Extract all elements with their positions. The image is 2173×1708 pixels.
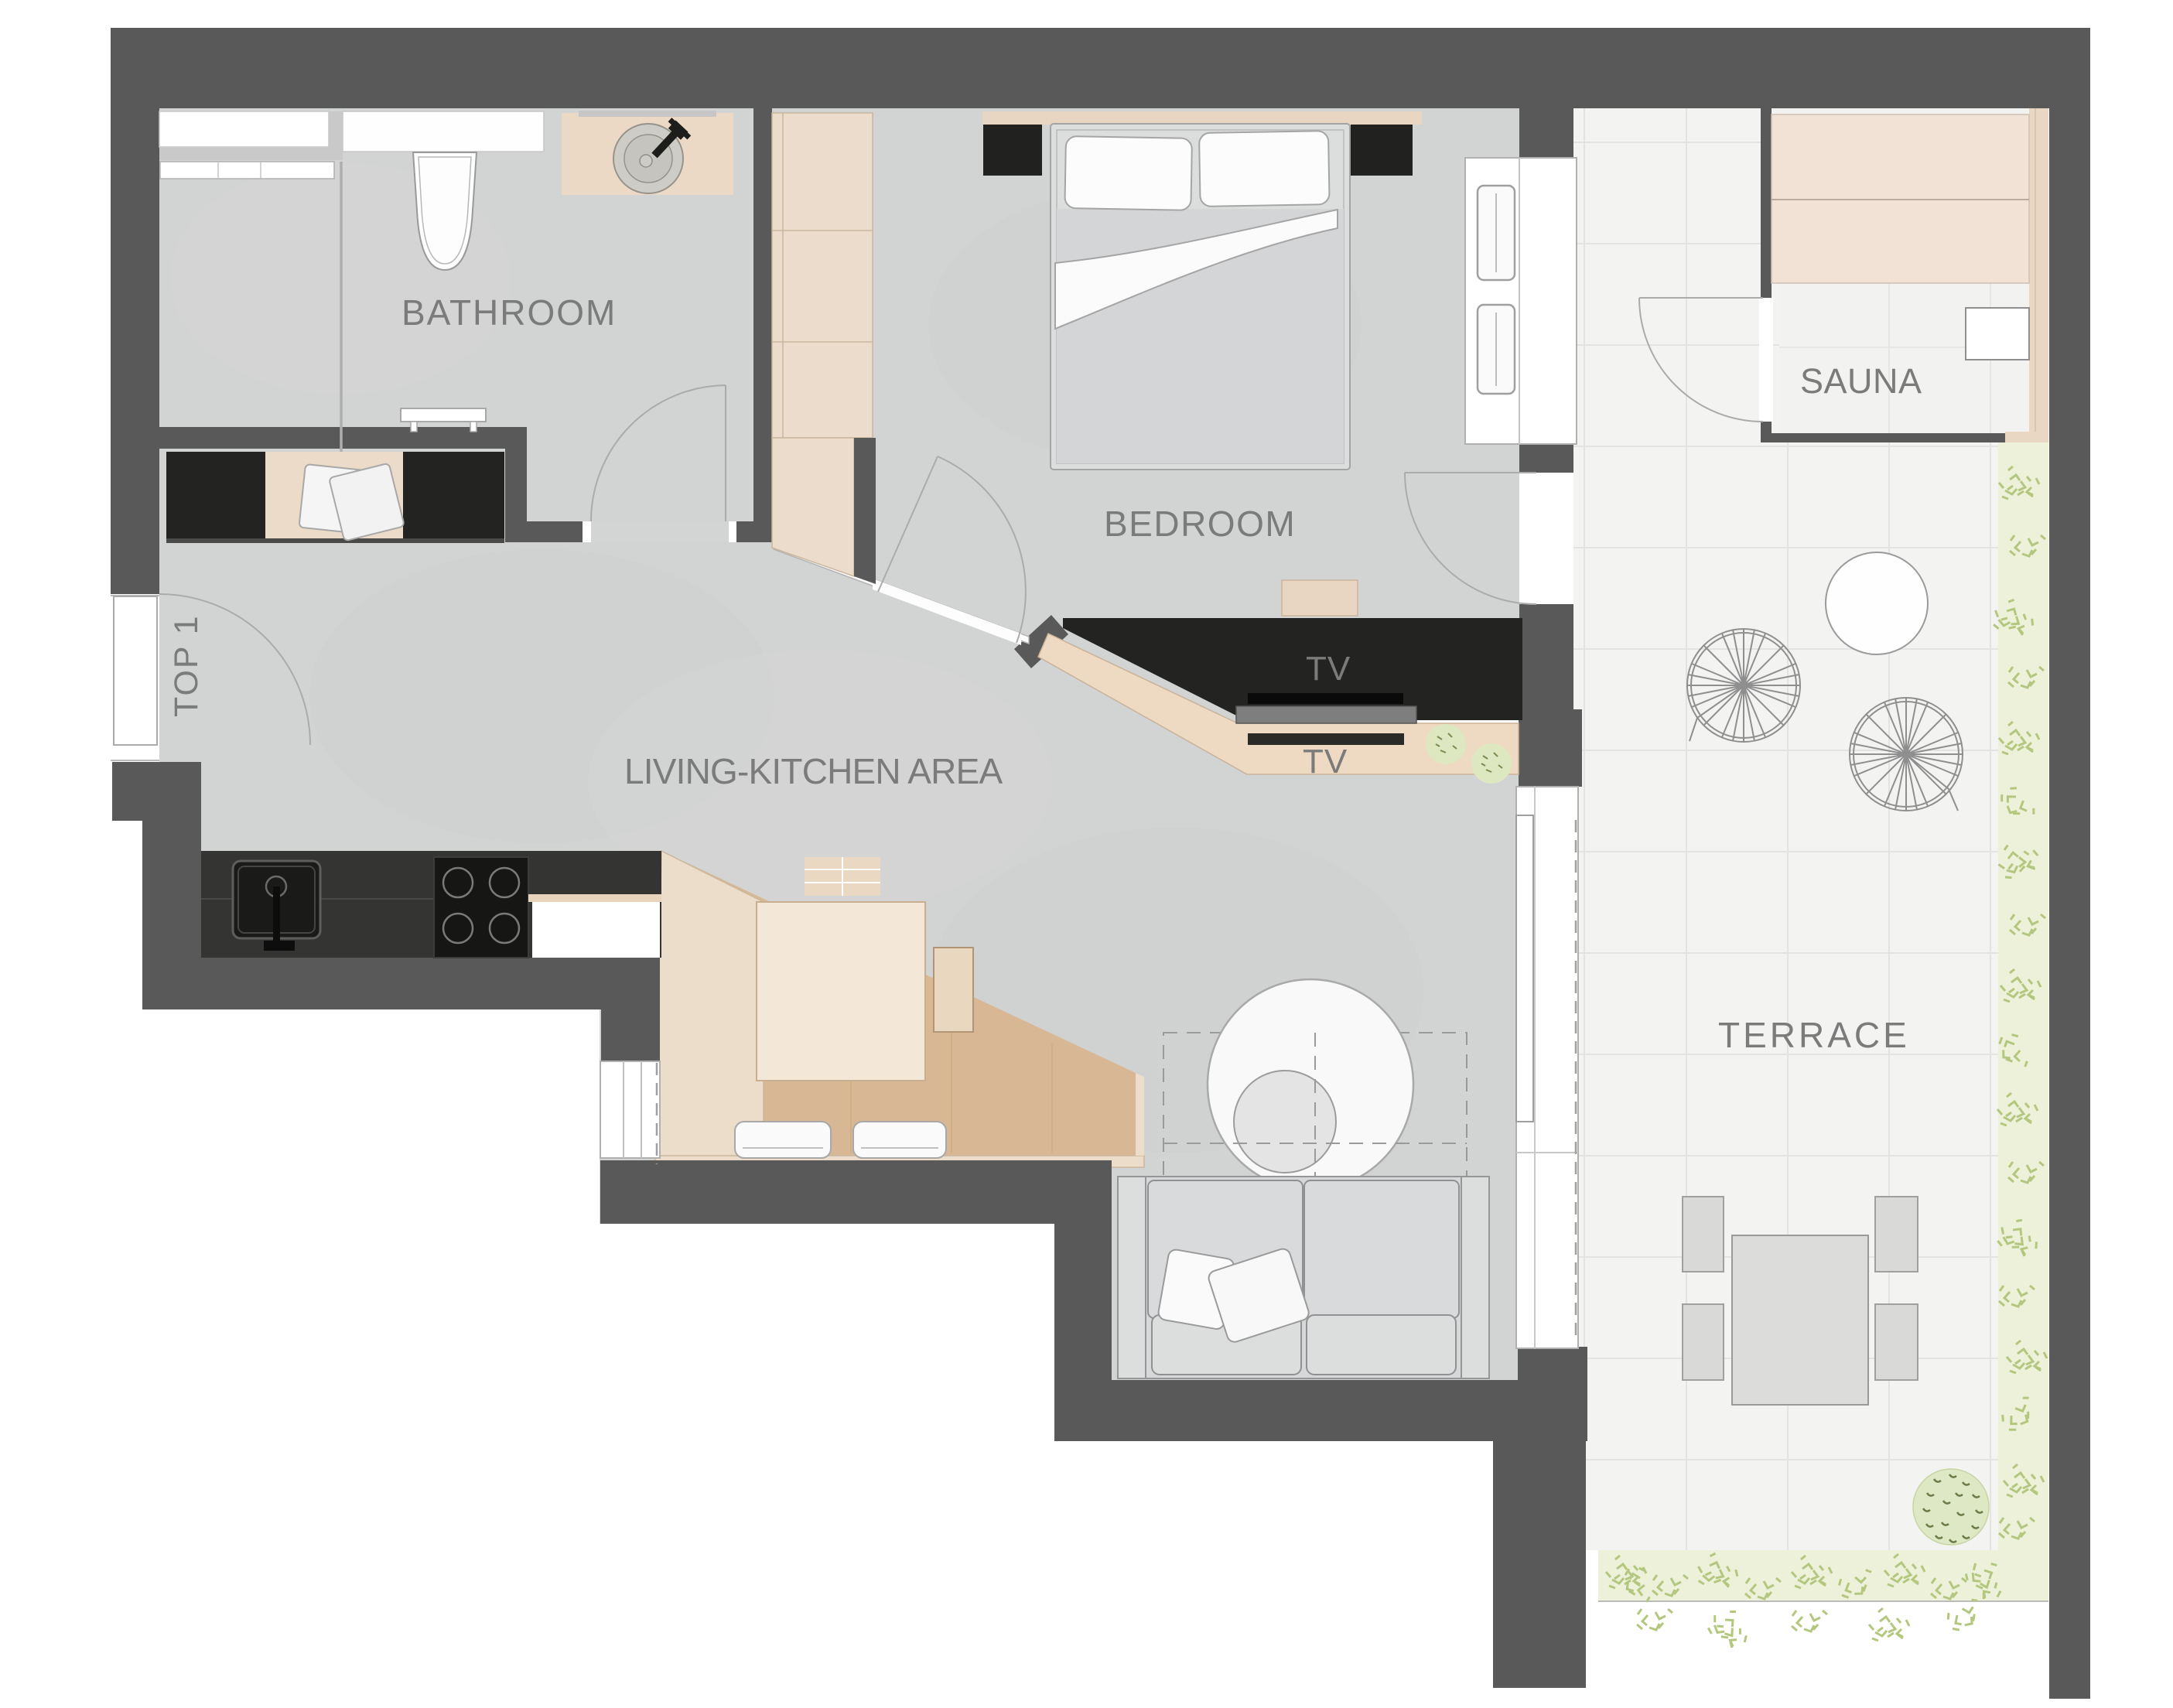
svg-text:TV: TV [1306,650,1351,688]
svg-text:BATHROOM: BATHROOM [401,292,617,333]
svg-text:TERRACE: TERRACE [1718,1015,1910,1055]
svg-text:SAUNA: SAUNA [1800,361,1922,401]
svg-text:LIVING-KITCHEN AREA: LIVING-KITCHEN AREA [624,751,1003,791]
svg-text:BEDROOM: BEDROOM [1104,504,1296,544]
svg-text:TOP 1: TOP 1 [168,614,205,717]
svg-text:TV: TV [1303,743,1348,781]
